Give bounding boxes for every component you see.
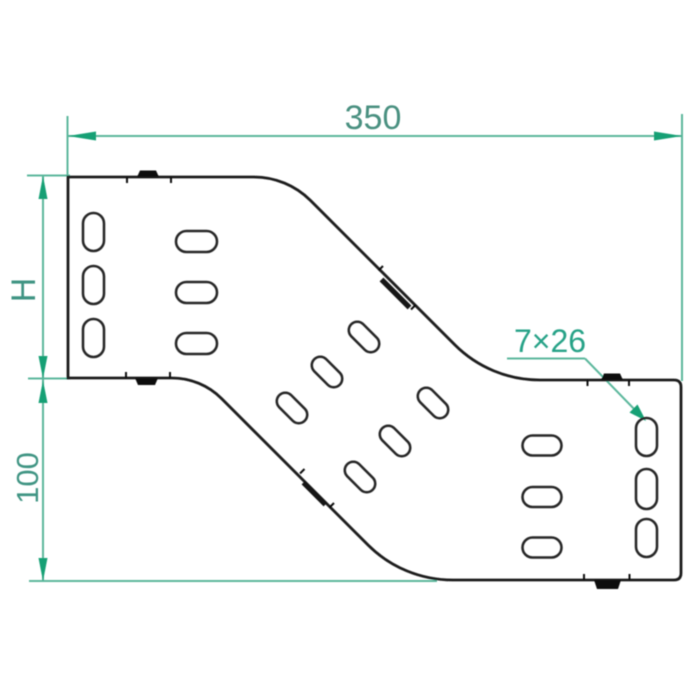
svg-text:100: 100 (10, 452, 45, 504)
svg-text:7×26: 7×26 (514, 323, 586, 359)
svg-text:350: 350 (345, 99, 402, 137)
svg-text:H: H (5, 278, 43, 303)
